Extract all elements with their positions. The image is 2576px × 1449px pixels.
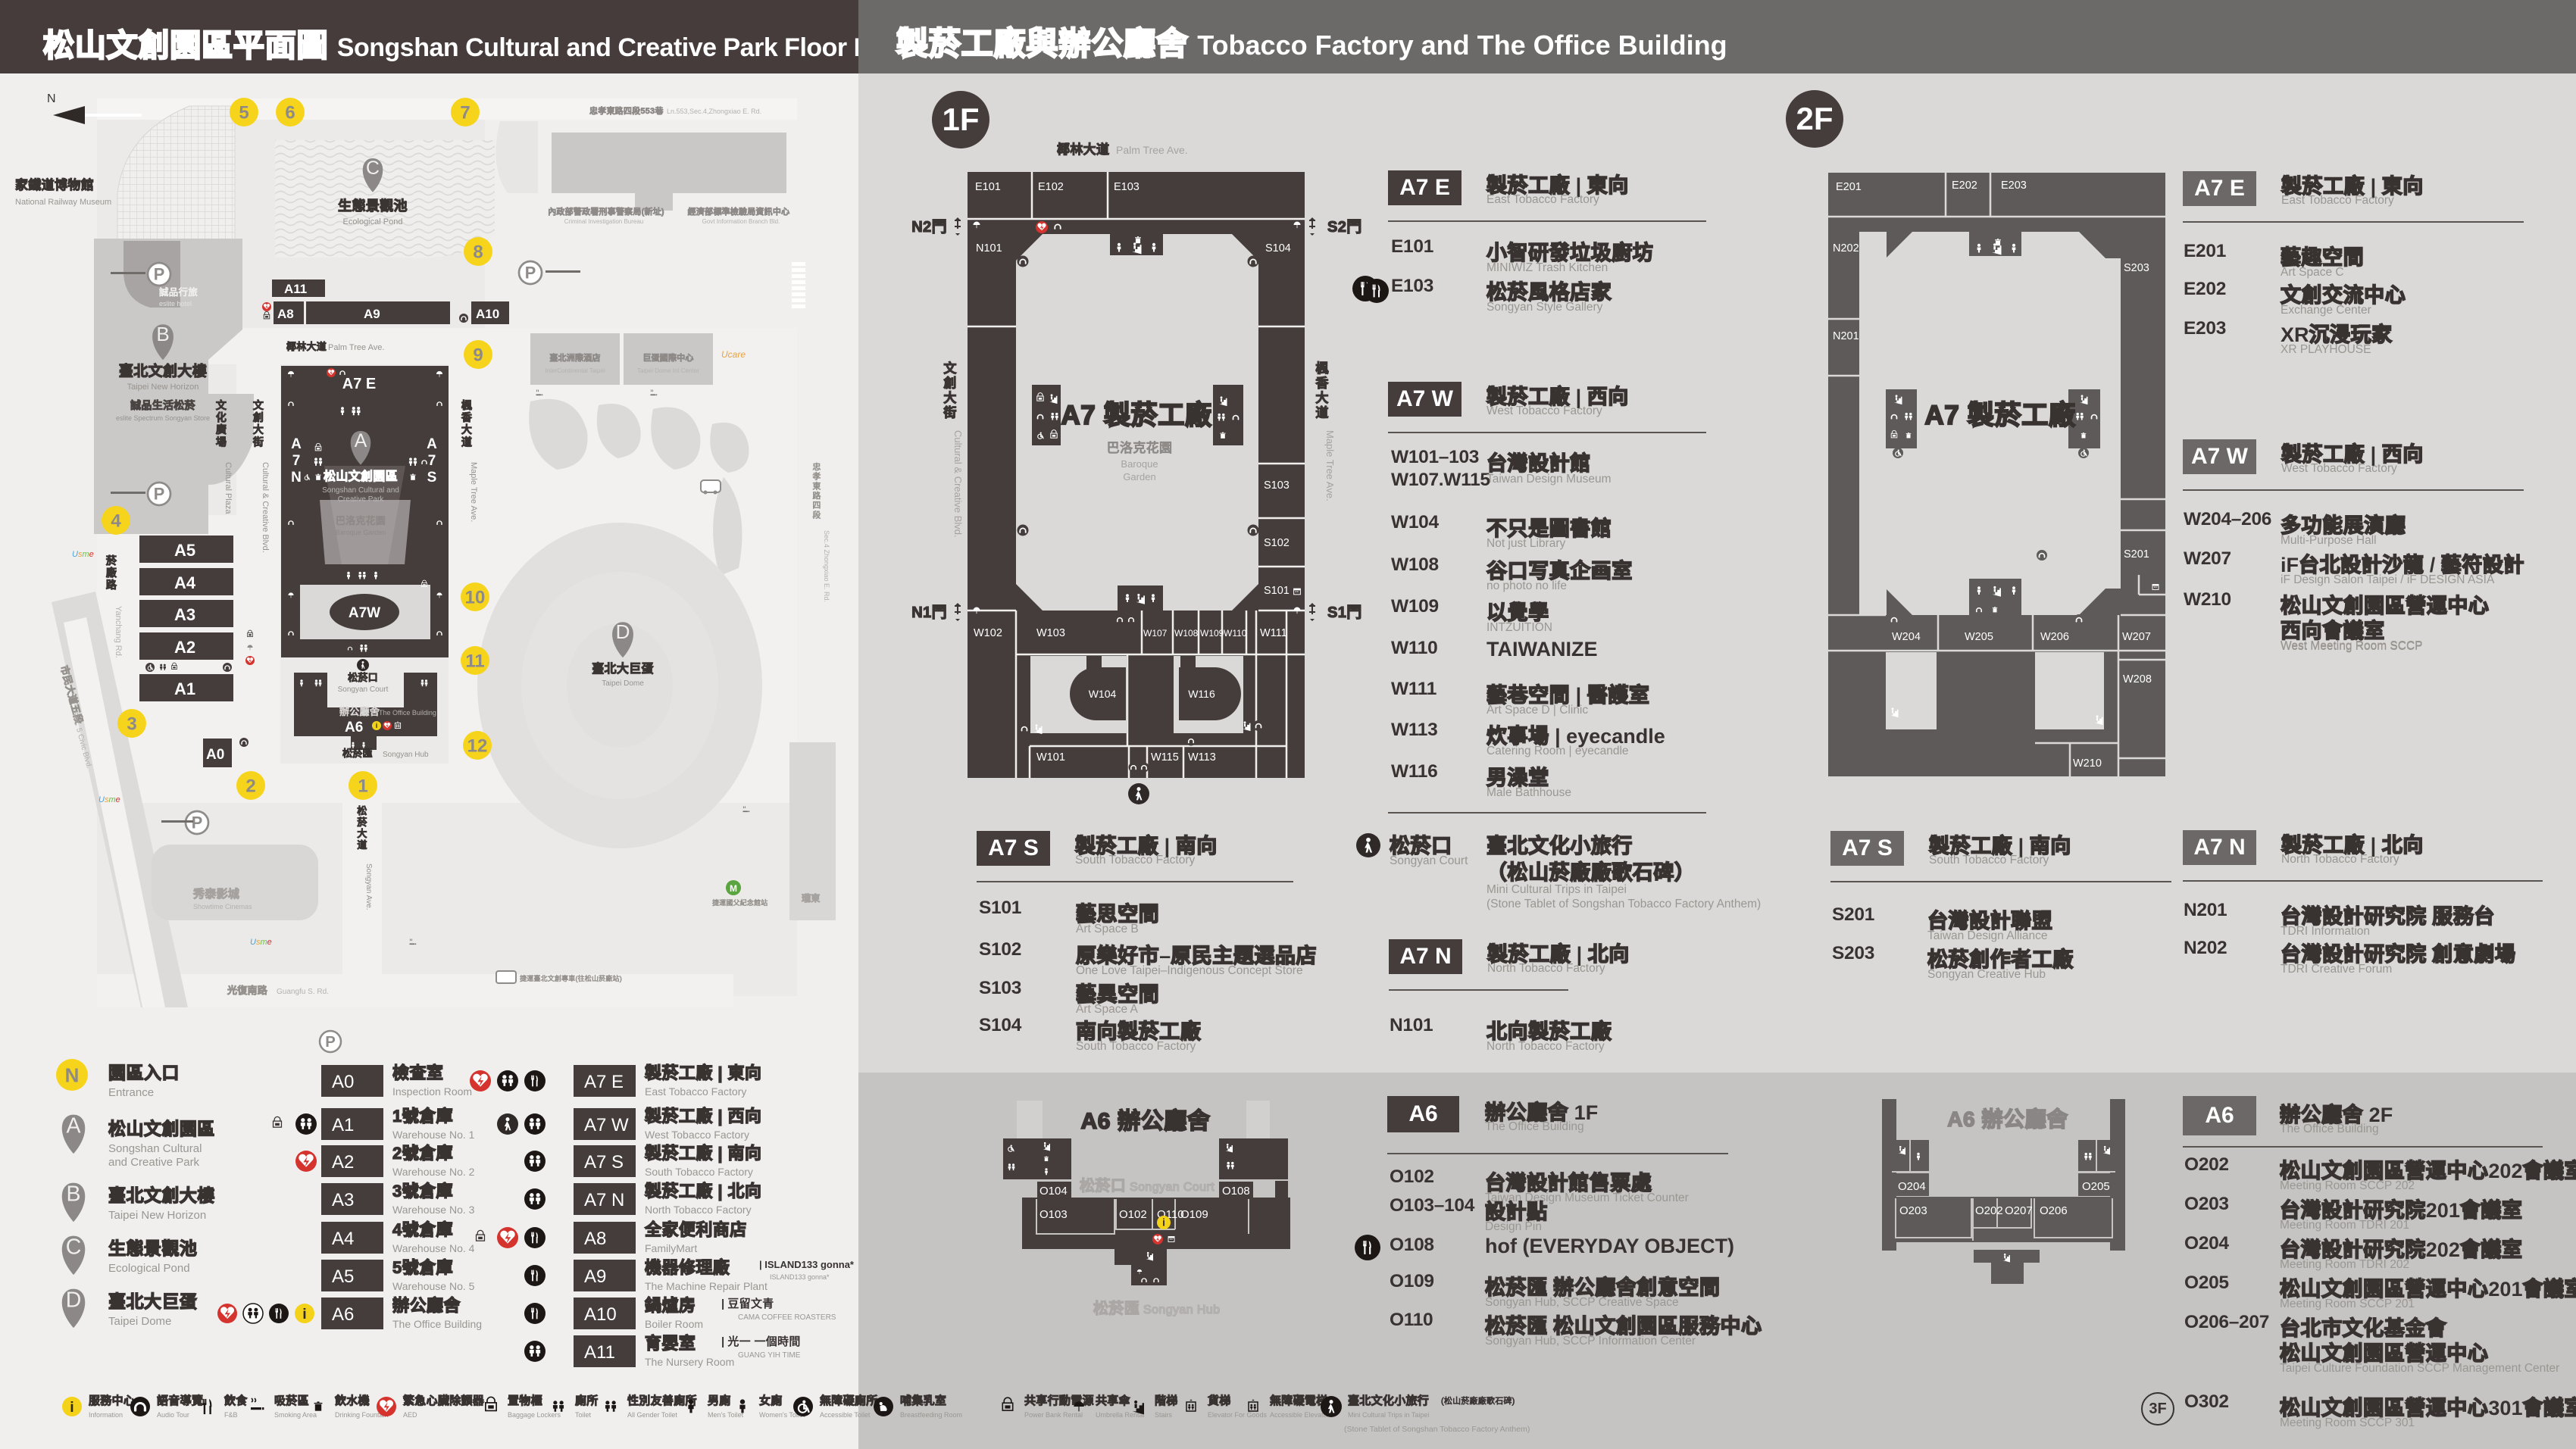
svg-text:A1: A1 bbox=[332, 1115, 354, 1135]
svg-text:7: 7 bbox=[428, 453, 436, 469]
svg-text:大: 大 bbox=[357, 828, 367, 839]
svg-text:檢查室: 檢查室 bbox=[392, 1063, 443, 1082]
svg-text:Cultural & Creative Blvd.: Cultural & Creative Blvd. bbox=[952, 430, 964, 538]
svg-text:臺北文化小旅行: 臺北文化小旅行 bbox=[1348, 1394, 1429, 1407]
svg-text:(松山菸廠廠歌石碑): (松山菸廠廠歌石碑) bbox=[1441, 1395, 1515, 1406]
svg-text:大: 大 bbox=[253, 423, 264, 436]
svg-text:C: C bbox=[66, 1235, 82, 1260]
svg-text:Warehouse No. 3: Warehouse No. 3 bbox=[392, 1204, 475, 1216]
svg-text:家鐵道博物館: 家鐵道博物館 bbox=[15, 177, 94, 192]
svg-text:香: 香 bbox=[1315, 376, 1328, 391]
svg-text:A5: A5 bbox=[174, 541, 195, 560]
svg-text:6: 6 bbox=[285, 103, 295, 123]
svg-text:South Tobacco Factory: South Tobacco Factory bbox=[645, 1166, 753, 1178]
svg-text:巴洛克花園: 巴洛克花園 bbox=[336, 515, 386, 526]
svg-text:Garden: Garden bbox=[1123, 471, 1155, 482]
svg-text:松菸口: 松菸口 bbox=[348, 672, 378, 683]
svg-text:椰林大道: 椰林大道 bbox=[286, 341, 327, 352]
svg-text:D: D bbox=[66, 1288, 82, 1313]
svg-text:W110: W110 bbox=[1224, 628, 1247, 639]
svg-text:Elevator For Goods: Elevator For Goods bbox=[1208, 1411, 1268, 1419]
svg-text:Ecological Pond: Ecological Pond bbox=[108, 1262, 190, 1275]
svg-text:O109: O109 bbox=[1180, 1208, 1208, 1221]
svg-text:大: 大 bbox=[1315, 390, 1328, 405]
svg-text:3號倉庫: 3號倉庫 bbox=[392, 1182, 453, 1201]
svg-text:育嬰室: 育嬰室 bbox=[645, 1334, 696, 1353]
svg-text:O104: O104 bbox=[1039, 1185, 1068, 1198]
svg-text:9: 9 bbox=[473, 345, 483, 366]
svg-text:秀泰影城: 秀泰影城 bbox=[192, 887, 239, 901]
svg-text:廠: 廠 bbox=[106, 567, 117, 579]
svg-text:S: S bbox=[427, 470, 437, 486]
svg-text:D: D bbox=[616, 620, 630, 643]
svg-text:eslite Spectrum Songyan Store: eslite Spectrum Songyan Store bbox=[116, 414, 210, 422]
svg-text:P: P bbox=[154, 265, 165, 284]
svg-text:N202: N202 bbox=[1833, 242, 1859, 255]
svg-text:A6 辦公廳舍: A6 辦公廳舍 bbox=[1081, 1108, 1211, 1134]
svg-text:5: 5 bbox=[239, 103, 249, 123]
svg-text:光復南路: 光復南路 bbox=[227, 985, 268, 996]
svg-text:Sec.4 Zhongxiao E. Rd.: Sec.4 Zhongxiao E. Rd. bbox=[823, 530, 830, 602]
svg-text:N1門: N1門 bbox=[911, 604, 947, 621]
svg-text:O103: O103 bbox=[1039, 1208, 1068, 1221]
svg-text:辦公廳舍: 辦公廳舍 bbox=[339, 706, 380, 717]
svg-text:Maple Tree Ave.: Maple Tree Ave. bbox=[1324, 430, 1336, 501]
svg-text:繁急心臟除顫器: 繁急心臟除顫器 bbox=[402, 1394, 485, 1407]
svg-text:A: A bbox=[291, 436, 302, 452]
svg-text:N2門: N2門 bbox=[911, 218, 947, 236]
svg-text:Baroque Garden: Baroque Garden bbox=[336, 529, 386, 536]
svg-text:S102: S102 bbox=[1264, 537, 1290, 549]
svg-text:街: 街 bbox=[943, 405, 956, 420]
svg-text:W111: W111 bbox=[1260, 627, 1287, 639]
svg-text:文: 文 bbox=[943, 361, 957, 376]
svg-text:O102: O102 bbox=[1119, 1208, 1147, 1221]
svg-text:Taipei New Horizon: Taipei New Horizon bbox=[108, 1209, 206, 1222]
svg-text:S104: S104 bbox=[1265, 242, 1291, 255]
svg-text:女廁: 女廁 bbox=[759, 1394, 783, 1407]
svg-text:C: C bbox=[366, 158, 380, 179]
svg-text:A3: A3 bbox=[174, 605, 195, 624]
svg-text:7: 7 bbox=[292, 453, 301, 469]
svg-text:O205: O205 bbox=[2082, 1180, 2110, 1193]
svg-text:i: i bbox=[376, 722, 378, 729]
svg-text:W113: W113 bbox=[1188, 751, 1216, 764]
svg-text:Palm Tree Ave.: Palm Tree Ave. bbox=[328, 343, 384, 352]
svg-text:P: P bbox=[325, 1034, 336, 1051]
svg-text:貨梯: 貨梯 bbox=[1208, 1394, 1231, 1407]
svg-text:A2: A2 bbox=[332, 1152, 354, 1173]
svg-text:A2: A2 bbox=[174, 638, 195, 657]
svg-text:A11: A11 bbox=[584, 1342, 615, 1363]
svg-text:內政部警政署刑事警察局(新址): 內政部警政署刑事警察局(新址) bbox=[548, 206, 664, 217]
svg-text:| ISLAND133 gonna*: | ISLAND133 gonna* bbox=[759, 1259, 855, 1270]
svg-text:West Tobacco Factory: West Tobacco Factory bbox=[645, 1129, 749, 1141]
svg-text:i: i bbox=[70, 1399, 73, 1416]
svg-text:A0: A0 bbox=[332, 1072, 354, 1092]
svg-text:3: 3 bbox=[127, 714, 136, 735]
svg-text:A: A bbox=[427, 436, 437, 452]
svg-text:W204: W204 bbox=[1892, 631, 1921, 643]
svg-text:Warehouse No. 5: Warehouse No. 5 bbox=[392, 1280, 475, 1292]
svg-text:A6: A6 bbox=[332, 1304, 354, 1325]
svg-text:Toilet: Toilet bbox=[575, 1411, 592, 1419]
svg-text:誠品生活松菸: 誠品生活松菸 bbox=[130, 399, 195, 411]
svg-text:W206: W206 bbox=[2040, 631, 2069, 643]
svg-text:機器修理廠: 機器修理廠 bbox=[645, 1258, 730, 1277]
svg-text:東: 東 bbox=[812, 481, 821, 491]
svg-text:Inspection Room: Inspection Room bbox=[392, 1085, 472, 1098]
svg-text:道: 道 bbox=[1315, 405, 1328, 420]
svg-text:East Tobacco Factory: East Tobacco Factory bbox=[645, 1085, 746, 1098]
svg-text:Stairs: Stairs bbox=[1155, 1411, 1173, 1419]
svg-text:i: i bbox=[1162, 1217, 1165, 1229]
svg-text:E102: E102 bbox=[1038, 181, 1064, 193]
svg-text:N: N bbox=[65, 1063, 80, 1086]
svg-text:A4: A4 bbox=[174, 573, 196, 592]
svg-text:松菸匯 Songyan Hub: 松菸匯 Songyan Hub bbox=[1093, 1299, 1220, 1317]
svg-text:W210: W210 bbox=[2073, 757, 2102, 770]
svg-text:A7 S: A7 S bbox=[584, 1152, 624, 1173]
svg-text:製菸工廠 | 南向: 製菸工廠 | 南向 bbox=[644, 1144, 761, 1163]
svg-text:O206: O206 bbox=[2040, 1204, 2068, 1217]
svg-text:W103: W103 bbox=[1036, 627, 1065, 639]
svg-text:松山文創園區: 松山文創園區 bbox=[324, 469, 398, 483]
svg-text:道: 道 bbox=[357, 839, 367, 851]
svg-text:Songyan Court: Songyan Court bbox=[338, 685, 389, 694]
svg-text:A4: A4 bbox=[332, 1229, 354, 1249]
svg-text:A9: A9 bbox=[364, 307, 380, 321]
svg-text:GUANG YIH TIME: GUANG YIH TIME bbox=[738, 1351, 801, 1360]
svg-text:松菸口 Songyan Court: 松菸口 Songyan Court bbox=[1080, 1176, 1215, 1194]
svg-text:創: 創 bbox=[252, 411, 264, 423]
svg-text:捷運臺北文創專車(往松山菸廠站): 捷運臺北文創專車(往松山菸廠站) bbox=[520, 974, 622, 982]
svg-text:W104: W104 bbox=[1089, 688, 1117, 700]
svg-text:A7 E: A7 E bbox=[584, 1072, 624, 1092]
svg-text:園區入口: 園區入口 bbox=[108, 1063, 180, 1082]
svg-text:E202: E202 bbox=[1952, 180, 1977, 192]
svg-text:A7W: A7W bbox=[349, 605, 380, 621]
svg-text:吸菸區: 吸菸區 bbox=[274, 1394, 309, 1407]
svg-text:Usme: Usme bbox=[98, 795, 120, 804]
svg-text:O108: O108 bbox=[1222, 1185, 1250, 1198]
svg-text:臺北文創大樓: 臺北文創大樓 bbox=[108, 1185, 215, 1205]
svg-text:Songshan Cultural: Songshan Cultural bbox=[108, 1142, 202, 1155]
svg-text:S2門: S2門 bbox=[1327, 218, 1362, 236]
svg-text:無障礙廁所: 無障礙廁所 bbox=[820, 1394, 878, 1407]
svg-text:男廁: 男廁 bbox=[708, 1394, 731, 1407]
svg-text:ISLAND133 gonna*: ISLAND133 gonna* bbox=[770, 1273, 830, 1281]
svg-text:FamilyMart: FamilyMart bbox=[645, 1242, 697, 1254]
svg-text:S1門: S1門 bbox=[1327, 604, 1362, 621]
svg-text:Accessible Toilet: Accessible Toilet bbox=[820, 1411, 871, 1419]
svg-text:A0: A0 bbox=[206, 747, 224, 763]
svg-text:Smoking Area: Smoking Area bbox=[274, 1411, 317, 1419]
svg-text:Usme: Usme bbox=[72, 550, 94, 559]
svg-text:S203: S203 bbox=[2124, 262, 2149, 274]
svg-text:Ecological Pond: Ecological Pond bbox=[343, 217, 403, 226]
svg-text:Cultural & Creative Blvd.: Cultural & Creative Blvd. bbox=[261, 462, 270, 553]
svg-text:大: 大 bbox=[943, 390, 956, 405]
svg-text:路: 路 bbox=[812, 491, 821, 501]
svg-text:Mini Cultural Trips in Taipei: Mini Cultural Trips in Taipei bbox=[1348, 1411, 1429, 1419]
svg-text:2: 2 bbox=[245, 776, 255, 797]
svg-text:A9: A9 bbox=[584, 1266, 606, 1287]
svg-text:路: 路 bbox=[106, 579, 117, 591]
svg-text:N: N bbox=[47, 92, 56, 105]
svg-text:A6: A6 bbox=[345, 720, 363, 735]
svg-text:Showtime Cinemas: Showtime Cinemas bbox=[193, 903, 252, 910]
svg-text:Songshan Cultural and: Songshan Cultural and bbox=[322, 486, 399, 495]
svg-text:A: A bbox=[355, 431, 367, 451]
svg-text:10: 10 bbox=[465, 588, 486, 608]
svg-text:F&B: F&B bbox=[224, 1411, 238, 1419]
svg-text:語音導覽: 語音導覽 bbox=[157, 1394, 203, 1407]
svg-text:文: 文 bbox=[253, 399, 264, 411]
svg-text:Songyan Ave.: Songyan Ave. bbox=[364, 863, 373, 910]
svg-text:Yanchang Rd.: Yanchang Rd. bbox=[114, 606, 123, 658]
svg-text:4: 4 bbox=[111, 511, 121, 532]
svg-text:4號倉庫: 4號倉庫 bbox=[392, 1220, 453, 1239]
svg-text:A8: A8 bbox=[277, 307, 294, 321]
svg-text:誠品行旅: 誠品行旅 bbox=[159, 287, 198, 298]
svg-text:Taipei Dome: Taipei Dome bbox=[602, 679, 644, 688]
svg-text:A7 W: A7 W bbox=[584, 1115, 629, 1135]
svg-text:W108: W108 bbox=[1174, 628, 1199, 639]
svg-text:哺集乳室: 哺集乳室 bbox=[900, 1394, 946, 1407]
svg-text:E103: E103 bbox=[1114, 181, 1140, 193]
svg-text:2F: 2F bbox=[1796, 101, 1833, 136]
svg-text:W207: W207 bbox=[2122, 631, 2151, 643]
svg-text:The Machine Repair Plant: The Machine Repair Plant bbox=[645, 1280, 767, 1292]
svg-text:Men's Toilet: Men's Toilet bbox=[708, 1411, 744, 1419]
svg-text:Palm Tree Ave.: Palm Tree Ave. bbox=[1116, 144, 1188, 156]
svg-text:忠: 忠 bbox=[812, 462, 821, 472]
svg-text:辦公廳舍: 辦公廳舍 bbox=[392, 1296, 461, 1315]
svg-text:楓: 楓 bbox=[1315, 361, 1329, 376]
svg-text:A10: A10 bbox=[584, 1304, 617, 1325]
svg-text:CAMA COFFEE ROASTERS: CAMA COFFEE ROASTERS bbox=[738, 1313, 836, 1322]
svg-text:N201: N201 bbox=[1833, 330, 1859, 342]
svg-text:經濟部標準檢驗局資訊中心: 經濟部標準檢驗局資訊中心 bbox=[688, 206, 790, 217]
svg-text:8: 8 bbox=[473, 242, 483, 263]
svg-text:製菸工廠 | 西向: 製菸工廠 | 西向 bbox=[644, 1107, 761, 1126]
svg-text:All Gender Toilet: All Gender Toilet bbox=[627, 1411, 677, 1419]
svg-text:段: 段 bbox=[812, 509, 821, 520]
svg-text:臺北文創大樓: 臺北文創大樓 bbox=[119, 362, 207, 379]
svg-text:W107: W107 bbox=[1143, 628, 1168, 639]
svg-text:A6 辦公廳舍: A6 辦公廳舍 bbox=[1947, 1107, 2068, 1131]
svg-text:松山文創園區: 松山文創園區 bbox=[108, 1119, 215, 1138]
svg-text:Taipei New Horizon: Taipei New Horizon bbox=[127, 383, 199, 392]
svg-text:W102: W102 bbox=[974, 627, 1002, 639]
svg-text:臺北大巨蛋: 臺北大巨蛋 bbox=[592, 661, 654, 676]
svg-text:道: 道 bbox=[461, 436, 472, 448]
svg-text:Audio Tour: Audio Tour bbox=[157, 1411, 189, 1419]
svg-text:A8: A8 bbox=[584, 1229, 606, 1249]
svg-text:O207: O207 bbox=[2005, 1204, 2033, 1217]
svg-text:松: 松 bbox=[357, 805, 367, 817]
svg-text:飲水機: 飲水機 bbox=[334, 1394, 370, 1407]
svg-text:製菸工廠 | 北向: 製菸工廠 | 北向 bbox=[644, 1182, 761, 1201]
svg-text:A: A bbox=[66, 1114, 80, 1138]
svg-text:The Office Building: The Office Building bbox=[379, 709, 436, 717]
svg-text:P: P bbox=[154, 485, 165, 504]
svg-text:O203: O203 bbox=[1899, 1204, 1927, 1217]
svg-text:階梯: 階梯 bbox=[1155, 1394, 1178, 1407]
svg-text:A7 製菸工廠: A7 製菸工廠 bbox=[1924, 400, 2075, 430]
svg-text:12: 12 bbox=[467, 736, 488, 757]
svg-text:Creative Park: Creative Park bbox=[338, 495, 385, 504]
svg-text:W101: W101 bbox=[1036, 751, 1065, 764]
svg-text:Entrance: Entrance bbox=[108, 1086, 154, 1099]
svg-text:S201: S201 bbox=[2124, 548, 2149, 561]
svg-text:Taipei Dome Int Center: Taipei Dome Int Center bbox=[637, 367, 699, 374]
svg-text:M: M bbox=[730, 883, 737, 894]
svg-text:The Nursery Room: The Nursery Room bbox=[645, 1356, 734, 1368]
svg-text:全家便利商店: 全家便利商店 bbox=[644, 1220, 747, 1239]
svg-text:Accessible Elevator: Accessible Elevator bbox=[1270, 1411, 1330, 1419]
svg-text:置物櫃: 置物櫃 bbox=[508, 1394, 542, 1407]
svg-text:E203: E203 bbox=[2001, 180, 2027, 192]
svg-text:E201: E201 bbox=[1836, 181, 1862, 193]
svg-text:North Tobacco Factory: North Tobacco Factory bbox=[645, 1204, 752, 1216]
svg-text:Taipei Dome: Taipei Dome bbox=[108, 1315, 171, 1328]
svg-text:and Creative Park: and Creative Park bbox=[108, 1156, 200, 1169]
svg-text:Cultural Plaza: Cultural Plaza bbox=[224, 462, 233, 514]
svg-text:鍋爐房: 鍋爐房 bbox=[645, 1296, 696, 1315]
svg-text:臺北大巨蛋: 臺北大巨蛋 bbox=[108, 1291, 197, 1311]
svg-text:11: 11 bbox=[465, 651, 484, 672]
svg-text:菸: 菸 bbox=[357, 817, 367, 828]
svg-text:臺北洲際酒店: 臺北洲際酒店 bbox=[549, 352, 600, 363]
svg-text:Information: Information bbox=[89, 1411, 123, 1419]
svg-text:四: 四 bbox=[812, 501, 821, 511]
svg-text:The Office Building: The Office Building bbox=[392, 1318, 482, 1330]
svg-text:Guangfu S. Rd.: Guangfu S. Rd. bbox=[277, 988, 329, 996]
svg-text:E101: E101 bbox=[975, 181, 1001, 193]
svg-text:National Railway Museum: National Railway Museum bbox=[15, 198, 111, 207]
svg-text:eslite hotel: eslite hotel bbox=[159, 300, 192, 308]
svg-text:Maple Tree Ave.: Maple Tree Ave. bbox=[469, 462, 478, 522]
svg-text:香: 香 bbox=[461, 411, 473, 423]
svg-text:無障礙電梯: 無障礙電梯 bbox=[1270, 1394, 1328, 1407]
svg-text:S101: S101 bbox=[1264, 585, 1290, 597]
svg-text:A7 N: A7 N bbox=[584, 1190, 624, 1210]
svg-text:瓏東: 瓏東 bbox=[802, 892, 820, 904]
svg-text:巴洛克花園: 巴洛克花園 bbox=[1107, 441, 1173, 455]
svg-text:文: 文 bbox=[216, 399, 227, 411]
svg-text:A3: A3 bbox=[332, 1190, 354, 1210]
svg-text:A1: A1 bbox=[174, 679, 195, 698]
svg-text:| 光一 一個時間: | 光一 一個時間 bbox=[721, 1335, 801, 1348]
svg-text:性別友善廁所: 性別友善廁所 bbox=[627, 1394, 697, 1407]
svg-text:A11: A11 bbox=[284, 282, 307, 296]
svg-text:楓: 楓 bbox=[461, 399, 473, 411]
svg-text:AED: AED bbox=[403, 1411, 417, 1419]
svg-text:椰林大道: 椰林大道 bbox=[1057, 142, 1109, 157]
svg-text:O204: O204 bbox=[1898, 1180, 1926, 1193]
svg-text:Baroque: Baroque bbox=[1121, 458, 1158, 470]
svg-text:W115: W115 bbox=[1151, 751, 1179, 764]
svg-text:Govt Information Branch Bld.: Govt Information Branch Bld. bbox=[702, 218, 780, 225]
svg-text:生態景觀池: 生態景觀池 bbox=[338, 198, 408, 214]
svg-text:生態景觀池: 生態景觀池 bbox=[108, 1238, 197, 1258]
svg-text:O202: O202 bbox=[1975, 1204, 2003, 1217]
svg-text:N: N bbox=[291, 470, 302, 486]
svg-text:| 豆留文青: | 豆留文青 bbox=[721, 1297, 774, 1310]
svg-text:菸: 菸 bbox=[106, 554, 117, 567]
svg-text:廁所: 廁所 bbox=[575, 1394, 599, 1407]
svg-text:i: i bbox=[302, 1306, 306, 1323]
svg-text:A10: A10 bbox=[476, 307, 499, 321]
svg-text:廣: 廣 bbox=[216, 423, 227, 436]
svg-text:共享傘: 共享傘 bbox=[1096, 1394, 1131, 1407]
svg-text:製菸工廠 | 東向: 製菸工廠 | 東向 bbox=[644, 1063, 761, 1082]
svg-text:Breastfeeding Room: Breastfeeding Room bbox=[900, 1411, 962, 1419]
svg-text:捷運國父紀念館站: 捷運國父紀念館站 bbox=[712, 898, 767, 907]
svg-text:Usme: Usme bbox=[250, 938, 272, 947]
svg-text:1號倉庫: 1號倉庫 bbox=[392, 1107, 453, 1126]
svg-text:Criminal Investigation Bureau: Criminal Investigation Bureau bbox=[564, 218, 644, 225]
svg-text:A7 E: A7 E bbox=[342, 376, 376, 392]
svg-text:1F: 1F bbox=[942, 101, 979, 137]
svg-text:街: 街 bbox=[252, 436, 264, 448]
svg-text:化: 化 bbox=[216, 411, 227, 423]
svg-text:Warehouse No. 2: Warehouse No. 2 bbox=[392, 1166, 475, 1178]
svg-text:大: 大 bbox=[461, 423, 472, 436]
svg-text:Songyan Hub: Songyan Hub bbox=[383, 751, 429, 759]
svg-text:7: 7 bbox=[460, 103, 470, 123]
svg-text:2號倉庫: 2號倉庫 bbox=[392, 1144, 453, 1163]
svg-text:W208: W208 bbox=[2123, 673, 2152, 685]
svg-text:A5: A5 bbox=[332, 1266, 354, 1287]
svg-text:忠孝東路四段553巷: 忠孝東路四段553巷 bbox=[589, 105, 664, 116]
svg-text:A7 製菸工廠: A7 製菸工廠 bbox=[1061, 400, 1211, 430]
svg-text:創: 創 bbox=[943, 376, 956, 391]
svg-text:Ucare: Ucare bbox=[721, 349, 746, 360]
svg-text:場: 場 bbox=[216, 436, 227, 448]
svg-text:W205: W205 bbox=[1965, 631, 1993, 643]
svg-text:5號倉庫: 5號倉庫 bbox=[392, 1258, 453, 1277]
svg-text:Ln.553,Sec.4,Zhongxiao E. Rd.: Ln.553,Sec.4,Zhongxiao E. Rd. bbox=[667, 108, 761, 115]
svg-text:Warehouse No. 4: Warehouse No. 4 bbox=[392, 1242, 475, 1254]
svg-text:Power Bank Rental: Power Bank Rental bbox=[1024, 1411, 1083, 1419]
svg-text:W109: W109 bbox=[1200, 628, 1224, 639]
svg-text:Warehouse No. 1: Warehouse No. 1 bbox=[392, 1129, 475, 1141]
svg-text:P: P bbox=[525, 264, 536, 283]
svg-text:S103: S103 bbox=[1264, 479, 1290, 492]
svg-text:松菸匯: 松菸匯 bbox=[342, 748, 373, 759]
svg-text:Baggage Lockers: Baggage Lockers bbox=[508, 1411, 561, 1419]
svg-text:Boiler Room: Boiler Room bbox=[645, 1318, 703, 1330]
svg-text:B: B bbox=[156, 323, 169, 345]
svg-text:孝: 孝 bbox=[812, 472, 821, 482]
svg-text:巨蛋國際中心: 巨蛋國際中心 bbox=[642, 352, 693, 363]
svg-text:InterContinental Taipei: InterContinental Taipei bbox=[545, 367, 605, 374]
svg-text:(Stone Tablet of Songshan Toba: (Stone Tablet of Songshan Tobacco Factor… bbox=[1344, 1425, 1530, 1434]
svg-text:B: B bbox=[66, 1182, 80, 1207]
svg-text:N101: N101 bbox=[976, 242, 1002, 255]
svg-text:1: 1 bbox=[358, 776, 367, 797]
svg-text:服務中心: 服務中心 bbox=[89, 1394, 135, 1407]
svg-text:飲食: 飲食 bbox=[224, 1394, 248, 1407]
svg-text:W116: W116 bbox=[1188, 688, 1215, 700]
